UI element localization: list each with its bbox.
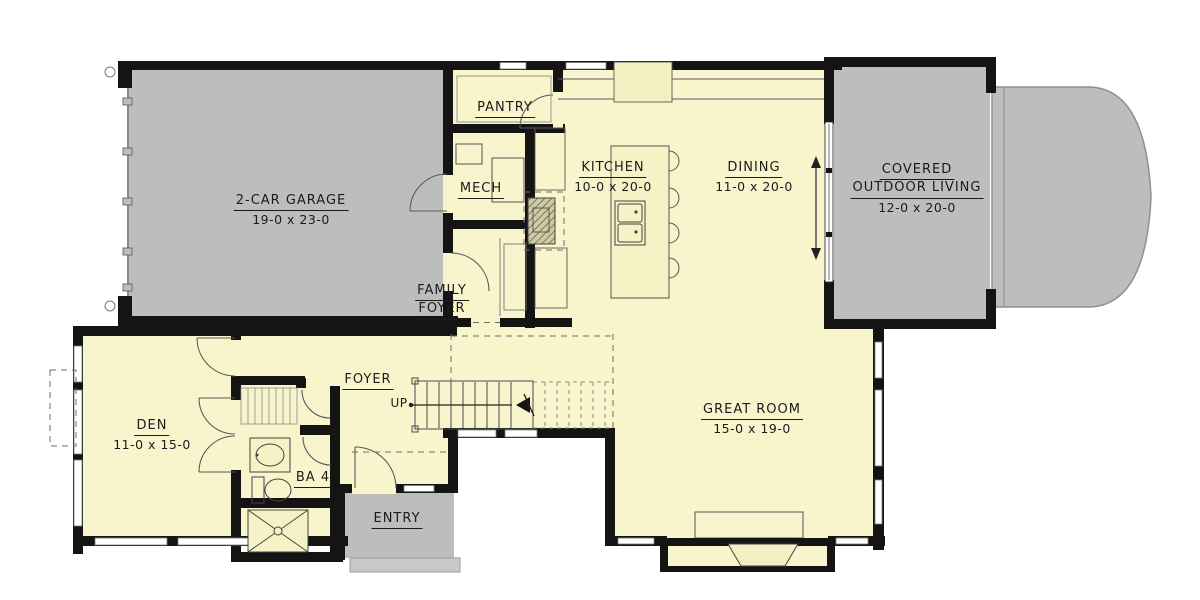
garage-door <box>105 67 132 311</box>
pantry-label: PANTRY <box>475 100 535 118</box>
family-foyer-line1: FAMILY <box>415 283 469 301</box>
up-text: UP <box>390 396 407 410</box>
great-room-label: GREAT ROOM 15-0 x 19-0 <box>701 402 803 437</box>
stairs-up-label: UP <box>390 396 407 411</box>
curved-deck <box>992 87 1151 307</box>
den-dims: 11-0 x 15-0 <box>113 437 191 453</box>
dining-dims: 11-0 x 20-0 <box>715 179 793 195</box>
bath4-label: BA 4 <box>294 470 332 488</box>
den-label: DEN 11-0 x 15-0 <box>113 418 191 453</box>
stair-hall-floor <box>453 328 615 438</box>
sliding-door <box>825 122 833 282</box>
floor-plan-page: 2-CAR GARAGE 19-0 x 23-0 PANTRY MECH KIT… <box>0 0 1200 600</box>
bathroom-sink <box>250 438 290 472</box>
bath4-name: BA 4 <box>294 470 332 488</box>
dining-label: DINING 11-0 x 20-0 <box>715 160 793 195</box>
mech-name: MECH <box>458 181 504 199</box>
pantry-name: PANTRY <box>475 100 535 118</box>
great-room-name: GREAT ROOM <box>701 402 803 420</box>
outdoor-living-line2: OUTDOOR LIVING <box>851 180 984 198</box>
garage-label: 2-CAR GARAGE 19-0 x 23-0 <box>234 193 349 228</box>
entry-label: ENTRY <box>371 511 422 529</box>
entry-name: ENTRY <box>371 511 422 529</box>
den-name: DEN <box>135 418 170 436</box>
garage-name: 2-CAR GARAGE <box>234 193 349 211</box>
dining-name: DINING <box>725 160 782 178</box>
outdoor-living-dims: 12-0 x 20-0 <box>851 200 984 216</box>
kitchen-label: KITCHEN 10-0 x 20-0 <box>574 160 652 195</box>
family-foyer-line2: FOYER <box>416 301 467 319</box>
great-room-dims: 15-0 x 19-0 <box>701 421 803 437</box>
shower <box>248 510 308 552</box>
garage-dims: 19-0 x 23-0 <box>234 212 349 228</box>
foyer-name: FOYER <box>342 372 393 390</box>
range-stove <box>528 198 555 244</box>
outdoor-living-label: COVERED OUTDOOR LIVING 12-0 x 20-0 <box>851 162 984 215</box>
floor-plan-drawing <box>0 0 1200 600</box>
foyer-label: FOYER <box>342 372 393 390</box>
kitchen-name: KITCHEN <box>579 160 646 178</box>
outdoor-living-line1: COVERED <box>880 162 954 180</box>
mech-label: MECH <box>458 181 504 199</box>
entry-step <box>350 558 460 572</box>
family-foyer-label: FAMILY FOYER <box>415 283 469 320</box>
kitchen-dims: 10-0 x 20-0 <box>574 179 652 195</box>
